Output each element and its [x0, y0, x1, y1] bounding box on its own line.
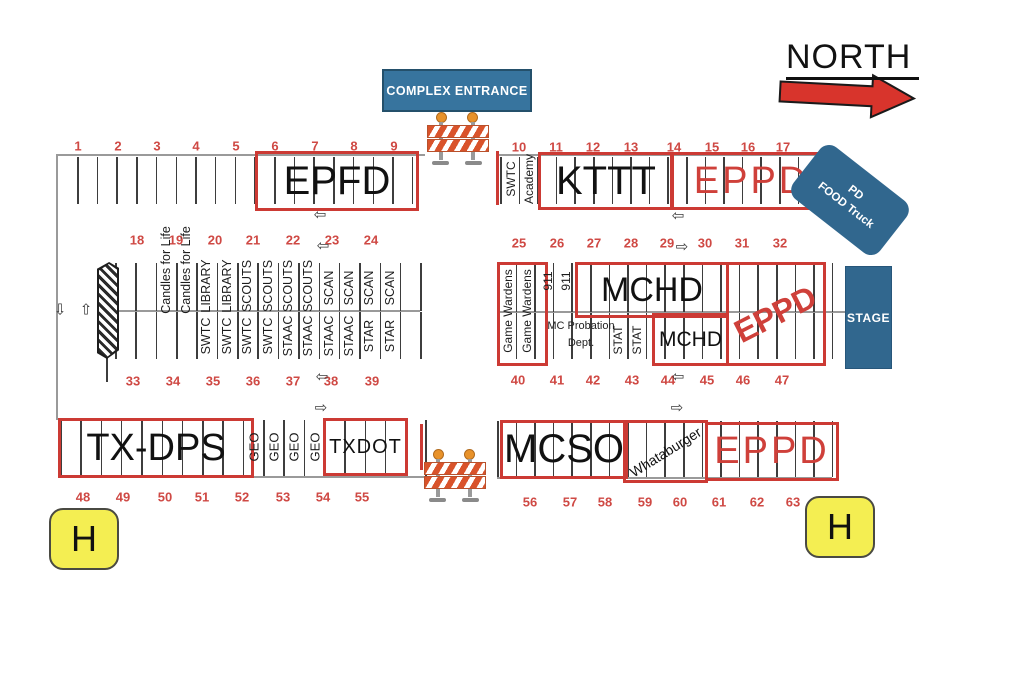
stall-label: GEO — [267, 433, 282, 462]
stall-line — [283, 420, 285, 476]
arrow-right-icon: ⇨ — [315, 401, 328, 416]
stall-line — [339, 263, 341, 311]
helipad-right-label: H — [827, 506, 853, 548]
stall-line — [380, 312, 382, 359]
stall-label: SCAN — [362, 271, 376, 306]
barricade-bar — [424, 462, 486, 475]
space-number: 15 — [705, 140, 719, 155]
stall-line — [217, 312, 219, 359]
stall-line — [319, 312, 321, 359]
stall-label: Game Wardens — [520, 269, 534, 353]
red-lane-marker — [420, 424, 423, 470]
space-number: 29 — [660, 236, 674, 251]
space-number: 12 — [586, 140, 600, 155]
stall-label: STAT — [630, 326, 644, 355]
space-number: 56 — [523, 495, 537, 510]
stall-label: LIBRARY — [199, 259, 213, 312]
stall-label: Game Wardens — [501, 269, 515, 353]
arrow-down-icon: ⇩ — [54, 303, 67, 318]
space-number: 10 — [512, 140, 526, 155]
barricade-foot — [432, 161, 449, 165]
stage: STAGE — [845, 266, 892, 369]
space-number: 46 — [736, 373, 750, 388]
stall-line — [298, 312, 300, 359]
stall-label: Candles for Life — [159, 226, 173, 314]
space-number: 7 — [311, 139, 318, 154]
space-number: 22 — [286, 233, 300, 248]
stall-line — [237, 263, 239, 311]
stall-label: SCOUTS — [240, 260, 254, 312]
stall-line — [176, 312, 178, 359]
stall-line — [519, 157, 521, 204]
space-number: 53 — [276, 490, 290, 505]
space-number: 63 — [786, 495, 800, 510]
event-complex-map: NORTH COMPLEX ENTRANCE — [0, 0, 1024, 681]
space-number: 52 — [235, 490, 249, 505]
stall-line — [400, 263, 402, 311]
stall-line — [263, 420, 265, 476]
stall-label: SCOUTS — [301, 260, 315, 312]
stall-line — [176, 263, 178, 311]
stall-line — [380, 263, 382, 311]
space-number: 47 — [775, 373, 789, 388]
stall-line — [135, 263, 137, 311]
space-number: 42 — [586, 373, 600, 388]
stall-label: SCOUTS — [281, 260, 295, 312]
booth-whataburger-label: Whataburger — [627, 423, 704, 479]
space-number: 3 — [153, 139, 160, 154]
mc-probation-line2: Dept. — [541, 335, 621, 352]
stall-line — [217, 263, 219, 311]
stall-label: 911 — [559, 271, 573, 290]
booth-mchd-lower: MCHD — [652, 313, 729, 366]
arrow-left-icon: ⇦ — [317, 239, 330, 254]
stall-label: SWTC — [261, 318, 275, 355]
stall-label: 911 — [541, 271, 555, 290]
space-number: 41 — [550, 373, 564, 388]
barricade-foot — [429, 498, 446, 502]
stall-line — [298, 263, 300, 311]
stall-label: GEO — [308, 433, 323, 462]
stall-label: SWTC — [199, 318, 213, 355]
stall-line — [235, 157, 237, 204]
stall-line — [156, 312, 158, 359]
booth-kttt-label: KTTT — [556, 159, 656, 204]
barricade-foot — [465, 161, 482, 165]
space-number: 37 — [286, 374, 300, 389]
stall-label: SCAN — [383, 271, 397, 306]
stall-line — [196, 312, 198, 359]
space-number: 48 — [76, 490, 90, 505]
space-number: 20 — [208, 233, 222, 248]
space-number: 57 — [563, 495, 577, 510]
space-number: 6 — [271, 139, 278, 154]
stall-label: SCAN — [322, 271, 336, 306]
space-number: 25 — [512, 236, 526, 251]
stall-line — [420, 263, 422, 311]
stall-line — [646, 313, 648, 359]
booth-mcso: MCSO — [500, 420, 628, 479]
space-number: 55 — [355, 490, 369, 505]
arrow-right-icon: ⇨ — [671, 401, 684, 416]
space-number: 2 — [114, 139, 121, 154]
space-number: 5 — [232, 139, 239, 154]
stall-line — [156, 157, 158, 204]
stall-line — [627, 313, 629, 359]
complex-entrance-sign: COMPLEX ENTRANCE — [382, 69, 532, 112]
north-label: NORTH — [786, 38, 919, 80]
space-number: 33 — [126, 374, 140, 389]
stall-label: STAR — [383, 320, 397, 352]
helipad-left-label: H — [71, 518, 97, 560]
space-number: 11 — [549, 140, 563, 155]
space-number: 62 — [750, 495, 764, 510]
space-number: 39 — [365, 374, 379, 389]
stall-line — [319, 263, 321, 311]
booth-tx-dps-label: TX-DPS — [86, 427, 225, 470]
barricade-bar — [427, 125, 489, 138]
stall-line — [278, 312, 280, 359]
stall-line — [136, 157, 138, 204]
space-number: 51 — [195, 490, 209, 505]
space-number: 36 — [246, 374, 260, 389]
space-number: 54 — [316, 490, 330, 505]
booth-eppd-mid: EPPD — [726, 262, 826, 366]
booth-mchd-upper-label: MCHD — [601, 271, 703, 310]
space-number: 58 — [598, 495, 612, 510]
space-number: 14 — [667, 140, 681, 155]
stall-line — [359, 312, 361, 359]
stall-line — [420, 312, 422, 359]
booth-mchd-upper: MCHD — [575, 262, 729, 318]
barricade-icon — [424, 449, 486, 502]
space-number: 31 — [735, 236, 749, 251]
booth-tx-dps: TX-DPS — [58, 418, 254, 478]
space-number: 9 — [390, 139, 397, 154]
stall-line — [195, 157, 197, 204]
barricade-icon — [427, 112, 489, 165]
space-number: 34 — [166, 374, 180, 389]
stall-line — [497, 421, 499, 477]
lot-boundary-line — [56, 154, 58, 420]
stall-line — [116, 157, 118, 204]
stall-label: SWTC — [220, 318, 234, 355]
stall-label: SCOUTS — [261, 260, 275, 312]
helipad-marker-left: H — [49, 508, 119, 570]
stall-line — [359, 263, 361, 311]
space-number: 35 — [206, 374, 220, 389]
booth-txdot: TXDOT — [323, 418, 408, 476]
space-number: 4 — [192, 139, 199, 154]
stall-label: SWTC — [504, 161, 518, 196]
space-number: 28 — [624, 236, 638, 251]
arrow-left-icon: ⇦ — [672, 370, 685, 385]
space-number: 59 — [638, 495, 652, 510]
space-number: 1 — [74, 139, 81, 154]
stall-line — [339, 312, 341, 359]
arrow-left-icon: ⇦ — [314, 208, 327, 223]
stall-label: LIBRARY — [220, 259, 234, 312]
island-stub-line — [106, 358, 108, 382]
hatched-median-island — [97, 262, 119, 359]
stall-line — [278, 263, 280, 311]
space-number: 27 — [587, 236, 601, 251]
space-number: 21 — [246, 233, 260, 248]
stall-line — [257, 263, 259, 311]
booth-mchd-lower-label: MCHD — [659, 328, 722, 352]
stall-label: Academy — [522, 154, 536, 204]
stall-line — [237, 312, 239, 359]
space-number: 60 — [673, 495, 687, 510]
booth-epfd: EPFD — [255, 151, 419, 211]
stall-line — [832, 313, 834, 359]
space-number: 26 — [550, 236, 564, 251]
space-number: 61 — [712, 495, 726, 510]
mc-probation-line1: MC Probation — [541, 318, 621, 335]
space-number: 24 — [364, 233, 378, 248]
stall-line — [97, 157, 99, 204]
barricade-bar — [424, 476, 486, 489]
stage-label: STAGE — [847, 311, 890, 325]
stall-line — [832, 263, 834, 312]
stall-label: STAAC — [322, 316, 336, 357]
booth-eppd-mid-label: EPPD — [729, 278, 823, 351]
booth-kttt: KTTT — [538, 152, 674, 210]
booth-eppd-south-label: EPPD — [714, 430, 829, 473]
stall-line — [257, 312, 259, 359]
stall-label: GEO — [287, 433, 302, 462]
stall-label: STAAC — [342, 316, 356, 357]
arrow-right-icon: ⇨ — [676, 240, 689, 255]
barricade-foot — [462, 498, 479, 502]
space-number: 17 — [776, 140, 790, 155]
stall-line — [77, 157, 79, 204]
space-number: 16 — [741, 140, 755, 155]
booth-whataburger: Whataburger — [623, 420, 708, 483]
space-number: 18 — [130, 233, 144, 248]
stall-label: GEO — [247, 433, 262, 462]
space-number: 30 — [698, 236, 712, 251]
space-number: 45 — [700, 373, 714, 388]
stall-label: SWTC — [240, 318, 254, 355]
complex-entrance-label: COMPLEX ENTRANCE — [386, 84, 527, 98]
red-lane-marker — [496, 151, 499, 205]
stall-line — [176, 157, 178, 204]
stall-label: STAT — [611, 326, 625, 355]
stall-label: STAAC — [301, 316, 315, 357]
food-truck-line2: FOOD Truck — [814, 179, 876, 233]
stall-line — [135, 312, 137, 359]
space-number: 32 — [773, 236, 787, 251]
arrow-left-icon: ⇦ — [316, 370, 329, 385]
stall-line — [196, 263, 198, 311]
booth-mc-probation: MC Probation Dept. — [541, 318, 621, 352]
stall-label: Candles for Life — [179, 226, 193, 314]
booth-mcso-label: MCSO — [504, 427, 624, 472]
map-canvas: NORTH COMPLEX ENTRANCE — [0, 0, 1024, 681]
booth-txdot-label: TXDOT — [329, 436, 402, 459]
stall-line — [215, 157, 217, 204]
space-number: 49 — [116, 490, 130, 505]
space-number: 13 — [624, 140, 638, 155]
arrow-up-icon: ⇧ — [80, 303, 93, 318]
stall-line — [156, 263, 158, 311]
stall-label: STAR — [362, 320, 376, 352]
barricade-bar — [427, 139, 489, 152]
space-number: 43 — [625, 373, 639, 388]
booth-epfd-label: EPFD — [284, 159, 391, 204]
helipad-marker-right: H — [805, 496, 875, 558]
arrow-left-icon: ⇦ — [672, 209, 685, 224]
stall-line — [304, 420, 306, 476]
hatched-median-island-stripes — [99, 264, 117, 357]
stall-line — [500, 157, 502, 204]
stall-label: STAAC — [281, 316, 295, 357]
booth-eppd-south: EPPD — [705, 422, 839, 481]
stall-label: SCAN — [342, 271, 356, 306]
space-number: 50 — [158, 490, 172, 505]
stall-line — [400, 312, 402, 359]
space-number: 40 — [511, 373, 525, 388]
space-number: 8 — [350, 139, 357, 154]
